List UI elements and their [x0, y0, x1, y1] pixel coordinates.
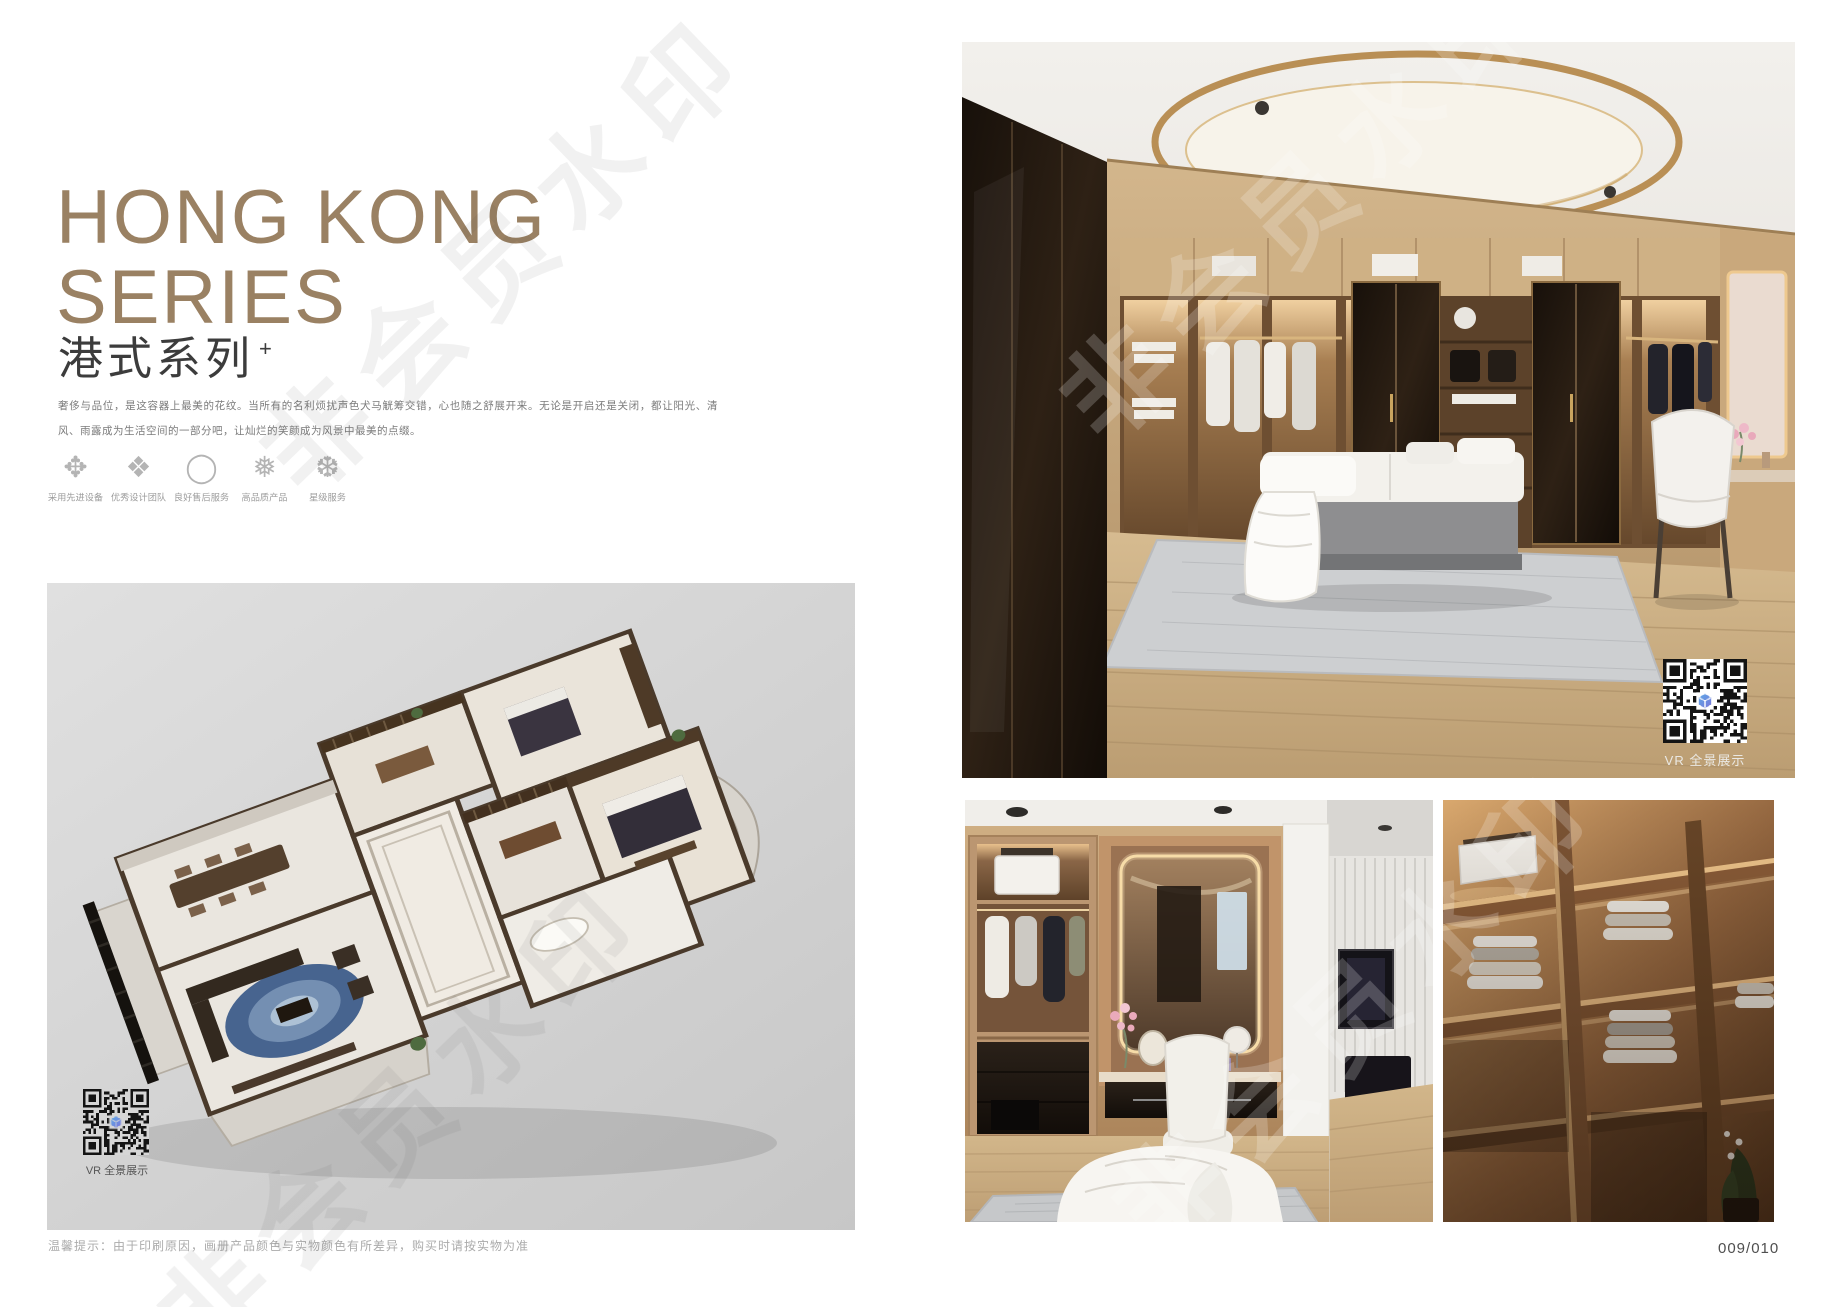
storage-box	[995, 856, 1059, 894]
snowflake-icon: ❅	[233, 450, 296, 486]
feature-label: 高品质产品	[236, 490, 294, 504]
print-disclaimer-note: 温馨提示：由于印刷原因，画册产品颜色与实物颜色有所差异，购买时请按实物为准	[48, 1237, 529, 1254]
vanity-mirror	[1728, 272, 1786, 457]
vr-qr-code-main-photo	[1663, 659, 1747, 743]
table-clock	[1139, 1031, 1167, 1065]
walkin-closet-photo: VR 全景展示	[962, 42, 1795, 778]
dressing-vanity-photo	[965, 800, 1433, 1222]
vr-panorama-label-floorplan: VR 全景展示	[69, 1162, 165, 1178]
isometric-floorplan-image: VR 全景展示	[47, 583, 855, 1230]
vanity-render	[965, 800, 1433, 1222]
feature-list: ✥ 采用先进设备 ❖ 优秀设计团队 ◯ 良好售后服务 ❅ 高品质产品 ❆ 星级服…	[44, 450, 359, 504]
diamond-flower-icon: ❖	[107, 450, 170, 486]
feature-star-service: ❆ 星级服务	[296, 450, 359, 504]
vr-qr-code-floorplan	[83, 1089, 149, 1155]
series-description: 奢侈与品位，是这容器上最美的花纹。当所有的名利烦扰声色犬马觥筹交错，心也随之舒展…	[58, 394, 718, 444]
pinwheel-flower-icon: ✥	[44, 450, 107, 486]
feature-label: 优秀设计团队	[110, 490, 168, 504]
floorplan-render	[47, 583, 855, 1230]
hanging-garment	[1043, 916, 1065, 1002]
ring-circle-icon: ◯	[170, 450, 233, 486]
feature-design-team: ❖ 优秀设计团队	[107, 450, 170, 504]
hanging-garment	[1015, 916, 1037, 986]
wardrobe-shelf-closeup-photo	[1443, 800, 1774, 1222]
feature-label: 星级服务	[299, 490, 357, 504]
series-title-english: HONG KONG SERIES	[56, 178, 547, 338]
feature-quality: ❅ 高品质产品	[233, 450, 296, 504]
star-snowflake-icon: ❆	[296, 450, 359, 486]
hanging-garment	[985, 916, 1009, 998]
feature-label: 采用先进设备	[47, 490, 105, 504]
feature-label: 良好售后服务	[173, 490, 231, 504]
title-line-1: HONG KONG	[56, 178, 547, 258]
shelf-render	[1443, 800, 1774, 1222]
series-title-chinese: 港式系列+	[58, 322, 271, 387]
catalog-page: HONG KONG SERIES 港式系列+ 奢侈与品位，是这容器上最美的花纹。…	[0, 0, 1836, 1307]
plus-superscript: +	[259, 336, 276, 361]
hanging-garment	[1069, 916, 1085, 976]
page-number: 009/010	[1718, 1240, 1779, 1257]
vr-panorama-label-main-photo: VR 全景展示	[1650, 750, 1760, 769]
feature-equipment: ✥ 采用先进设备	[44, 450, 107, 504]
feature-after-sales: ◯ 良好售后服务	[170, 450, 233, 504]
